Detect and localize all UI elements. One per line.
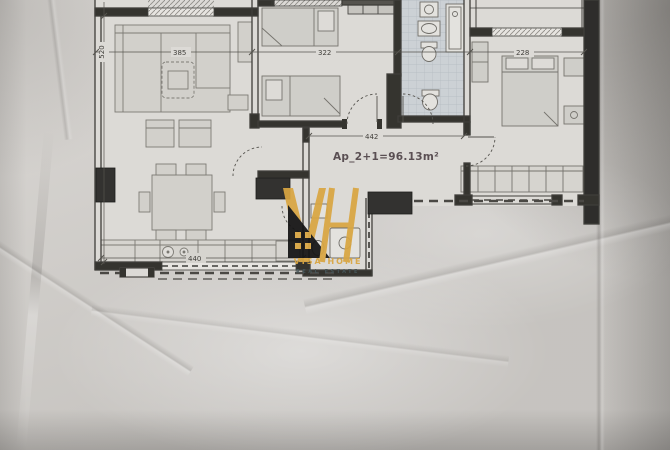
chair [186,230,206,241]
pouf [228,95,248,110]
chair [156,164,176,175]
sofa-chaise [196,33,230,88]
nightstand [564,58,584,76]
pillar [96,168,115,202]
washing-machine [311,204,327,218]
nightstand [564,106,584,124]
pillow [318,11,334,31]
dimension-label-bedroom-mid: 322 [318,49,331,57]
washing-machine [420,2,438,17]
dimension-label-height: 520 [98,45,106,58]
armchair [179,120,211,147]
pillow [266,80,282,100]
armchair [146,120,174,147]
balcony-hatch [148,0,214,8]
shelf [238,22,252,62]
shower [330,228,360,258]
dimension-label-hall: 442 [365,133,378,141]
pillar [256,178,290,199]
pillow [506,58,528,69]
coffee-table [168,71,188,89]
exterior-wall [584,0,599,224]
toilet [312,241,324,256]
floor-plan-photo: 385 322 228 520 442 440 Ap_2+1=96.13m² [0,0,670,450]
floor-plan-drawing: 385 322 228 520 442 440 Ap_2+1=96.13m² [0,0,670,450]
dimension-label-bedroom-right: 228 [516,49,529,57]
pillar [368,192,412,214]
chair [156,230,176,241]
apartment-area-label: Ap_2+1=96.13m² [333,151,439,163]
wardrobe [461,166,583,192]
pillow [532,58,554,69]
dining-table [152,175,212,230]
dimension-label-kitchen: 440 [188,255,201,263]
dimension-label-living: 385 [173,49,186,57]
chair [186,164,206,175]
chair [139,192,150,212]
chair [214,192,225,212]
